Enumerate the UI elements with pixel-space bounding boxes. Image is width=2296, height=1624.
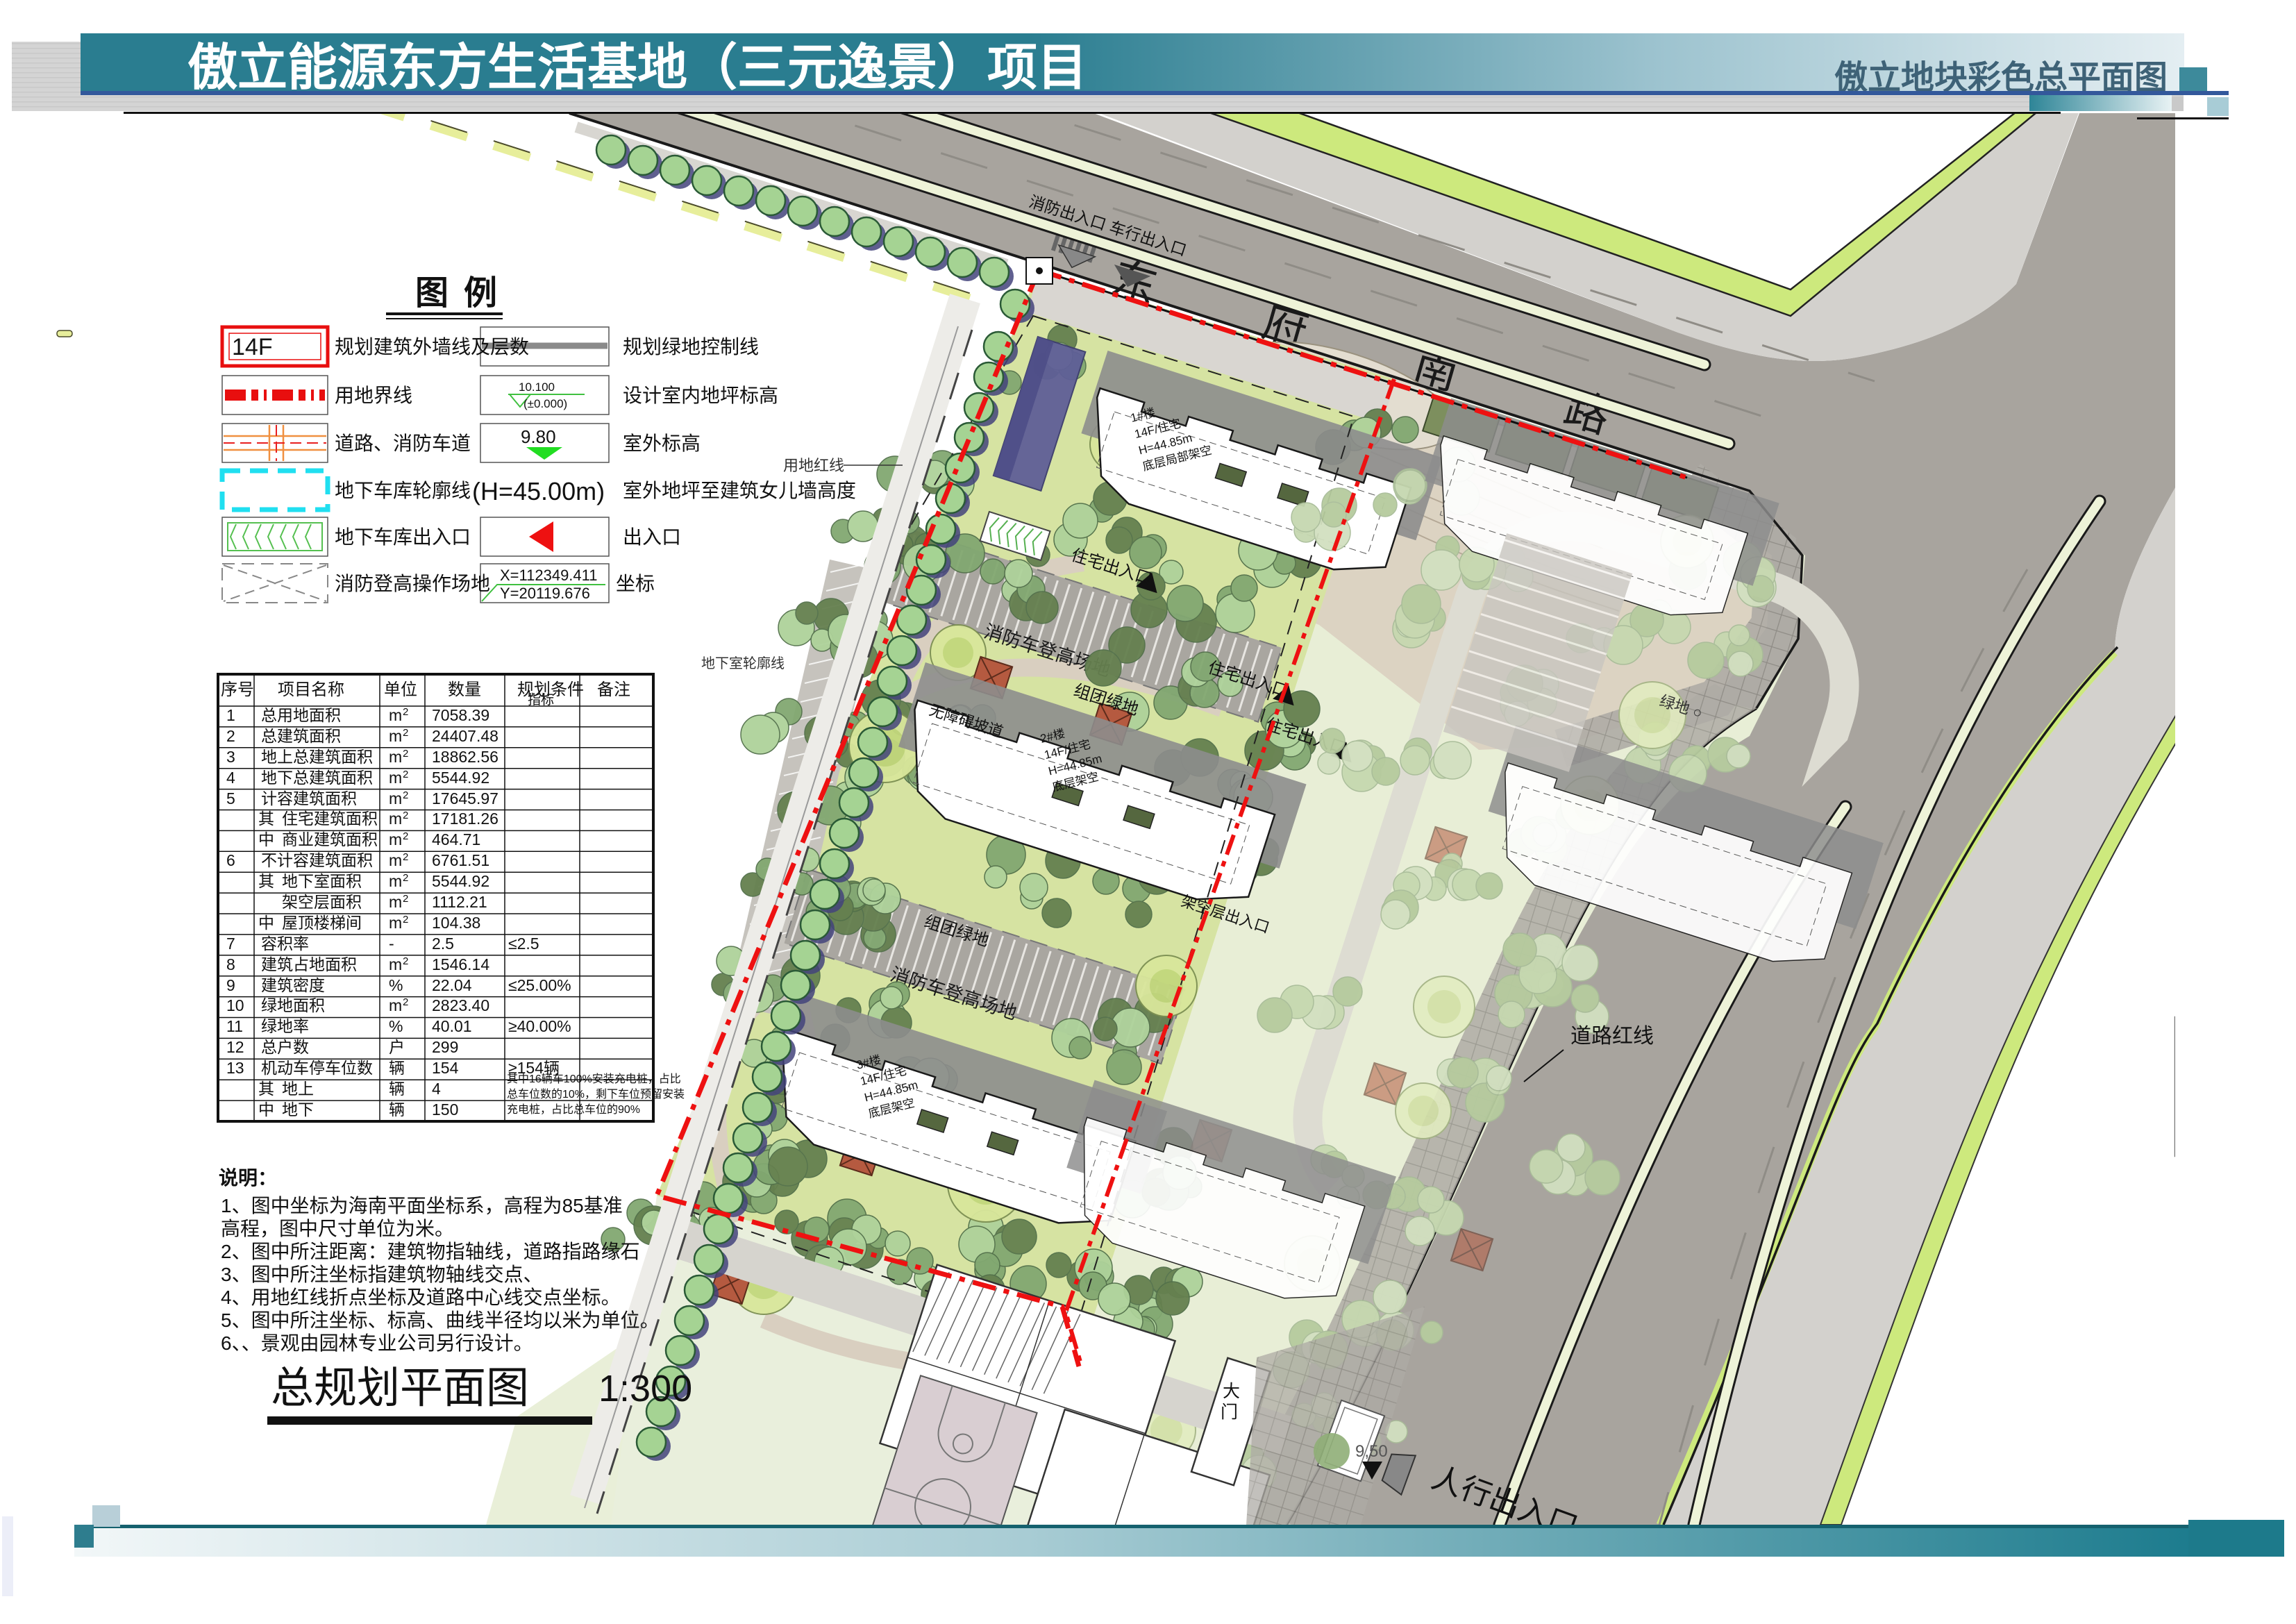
svg-text:设计室内地坪标高: 设计室内地坪标高: [623, 385, 778, 406]
svg-text:不计容建筑面积: 不计容建筑面积: [261, 851, 373, 869]
svg-text:户: 户: [389, 1038, 405, 1056]
svg-text:150: 150: [432, 1100, 458, 1119]
svg-text:2: 2: [403, 996, 408, 1008]
svg-text:24407.48: 24407.48: [432, 727, 498, 745]
svg-text:其: 其: [258, 810, 274, 828]
svg-text:商业建筑面积: 商业建筑面积: [282, 830, 378, 848]
svg-text:地下: 地下: [282, 1100, 314, 1119]
svg-text:9: 9: [226, 976, 235, 994]
svg-text:总规划平面图: 总规划平面图: [271, 1364, 529, 1412]
svg-text:坐标: 坐标: [616, 573, 655, 594]
svg-text:m: m: [389, 769, 402, 787]
svg-text:2: 2: [403, 789, 408, 801]
svg-text:m: m: [389, 893, 402, 911]
svg-text:1112.21: 1112.21: [432, 893, 487, 911]
svg-text:道路红线: 道路红线: [1570, 1025, 1654, 1048]
svg-text:9,50: 9,50: [1355, 1442, 1388, 1461]
svg-text:m: m: [389, 706, 402, 724]
svg-text:辆: 辆: [389, 1059, 405, 1077]
svg-text:12: 12: [226, 1038, 244, 1056]
svg-text:m: m: [389, 789, 402, 807]
svg-text:m: m: [389, 996, 402, 1014]
svg-text:2: 2: [226, 727, 235, 745]
svg-text:1:300: 1:300: [598, 1368, 692, 1409]
svg-text:10.100: 10.100: [519, 380, 555, 394]
svg-text:4: 4: [226, 769, 235, 787]
svg-text:地下总建筑面积: 地下总建筑面积: [261, 769, 373, 787]
svg-text:总户数: 总户数: [261, 1038, 309, 1056]
svg-text:规划绿地控制线: 规划绿地控制线: [623, 336, 759, 358]
svg-text:2: 2: [403, 914, 408, 926]
svg-text:大: 大: [1223, 1382, 1240, 1401]
svg-text:6: 6: [226, 851, 235, 869]
svg-text:m: m: [389, 955, 402, 973]
svg-text:2.5: 2.5: [432, 935, 454, 953]
svg-text:m: m: [389, 830, 402, 848]
svg-text:地下车库轮廓线: 地下车库轮廓线: [335, 480, 471, 501]
svg-text:总车位数的10%，剩下车位预留安装: 总车位数的10%，剩下车位预留安装: [507, 1088, 685, 1100]
svg-text:X=112349.411: X=112349.411: [500, 567, 598, 584]
svg-text:建筑密度: 建筑密度: [261, 976, 325, 994]
svg-text:1546.14: 1546.14: [432, 955, 489, 973]
svg-text:总建筑面积: 总建筑面积: [261, 727, 341, 745]
svg-text:m: m: [389, 851, 402, 869]
svg-text:绿地率: 绿地率: [261, 1017, 309, 1035]
svg-text:住宅建筑面积: 住宅建筑面积: [282, 810, 378, 828]
svg-text:单位: 单位: [384, 680, 417, 699]
svg-text:地下室面积: 地下室面积: [282, 872, 362, 890]
svg-text:道路、消防车道: 道路、消防车道: [335, 433, 471, 454]
svg-text:充电桩，占比总车位的90%: 充电桩，占比总车位的90%: [507, 1103, 640, 1116]
svg-text:绿地面积: 绿地面积: [261, 996, 325, 1014]
svg-text:5、图中所注坐标、标高、曲线半径均以米为单位。: 5、图中所注坐标、标高、曲线半径均以米为单位。: [221, 1309, 660, 1331]
svg-text:说明：: 说明：: [219, 1167, 277, 1189]
svg-text:Y=20119.676: Y=20119.676: [500, 585, 590, 602]
svg-text:2、图中所注距离：建筑物指轴线，道路指路缘石: 2、图中所注距离：建筑物指轴线，道路指路缘石: [221, 1241, 640, 1262]
svg-text:m: m: [389, 872, 402, 890]
svg-text:3: 3: [226, 748, 235, 766]
svg-text:%: %: [389, 1017, 403, 1035]
svg-text:2: 2: [403, 851, 408, 863]
svg-text:13: 13: [226, 1059, 244, 1077]
svg-text:299: 299: [432, 1038, 458, 1056]
svg-text:2823.40: 2823.40: [432, 996, 489, 1014]
svg-text:2: 2: [403, 727, 408, 739]
svg-text:104.38: 104.38: [432, 914, 480, 932]
svg-text:项目名称: 项目名称: [278, 680, 344, 699]
svg-text:5544.92: 5544.92: [432, 769, 489, 787]
svg-text:14F: 14F: [232, 334, 273, 360]
svg-text:地上: 地上: [282, 1080, 314, 1098]
svg-text:6761.51: 6761.51: [432, 851, 489, 869]
svg-text:3、图中所注坐标指建筑物轴线交点、: 3、图中所注坐标指建筑物轴线交点、: [221, 1264, 543, 1285]
svg-text:1、图中坐标为海南平面坐标系，高程为85基准: 1、图中坐标为海南平面坐标系，高程为85基准: [221, 1195, 623, 1216]
svg-text:154: 154: [432, 1059, 459, 1077]
svg-text:辆: 辆: [389, 1080, 405, 1098]
svg-text:2: 2: [403, 769, 408, 780]
svg-text:≤25.00%: ≤25.00%: [508, 976, 571, 994]
svg-text:2: 2: [403, 893, 408, 905]
svg-text:5: 5: [226, 789, 235, 807]
svg-text:2: 2: [403, 830, 408, 842]
svg-text:中: 中: [258, 1100, 274, 1119]
svg-text:辆: 辆: [389, 1100, 405, 1119]
svg-text:消防登高操作场地: 消防登高操作场地: [335, 573, 490, 594]
svg-text:建筑占地面积: 建筑占地面积: [261, 955, 357, 973]
svg-text:10: 10: [226, 996, 244, 1014]
svg-text:2: 2: [403, 955, 408, 967]
svg-text:其: 其: [258, 1080, 274, 1098]
svg-text:地下室轮廓线: 地下室轮廓线: [701, 655, 785, 671]
svg-text:%: %: [389, 976, 403, 994]
svg-text:8: 8: [226, 955, 235, 973]
svg-text:中: 中: [258, 830, 274, 848]
svg-text:7058.39: 7058.39: [432, 706, 489, 724]
svg-text:m: m: [389, 810, 402, 828]
svg-text:2: 2: [403, 706, 408, 718]
svg-text:其: 其: [258, 872, 274, 890]
svg-text:容积率: 容积率: [261, 935, 309, 953]
svg-text:(H=45.00m): (H=45.00m): [472, 477, 605, 505]
svg-text:m: m: [389, 914, 402, 932]
svg-text:地上总建筑面积: 地上总建筑面积: [261, 748, 373, 766]
svg-text:2: 2: [403, 748, 408, 760]
svg-text:m: m: [389, 727, 402, 745]
svg-text:9.80: 9.80: [521, 426, 556, 447]
svg-text:22.04: 22.04: [432, 976, 472, 994]
svg-text:高程，图中尺寸单位为米。: 高程，图中尺寸单位为米。: [221, 1218, 454, 1239]
svg-text:机动车停车位数: 机动车停车位数: [261, 1059, 373, 1077]
svg-text:中: 中: [258, 914, 274, 932]
svg-text:用地界线: 用地界线: [335, 385, 412, 406]
svg-text:用地红线: 用地红线: [783, 457, 844, 474]
svg-text:傲立能源东方生活基地（三元逸景）项目: 傲立能源东方生活基地（三元逸景）项目: [187, 40, 1087, 96]
svg-text:总用地面积: 总用地面积: [261, 706, 341, 724]
svg-text:≥40.00%: ≥40.00%: [508, 1017, 571, 1035]
svg-text:指标: 指标: [528, 692, 554, 708]
svg-text:6、、景观由园林专业公司另行设计。: 6、、景观由园林专业公司另行设计。: [221, 1332, 533, 1354]
svg-text:18862.56: 18862.56: [432, 748, 498, 766]
svg-text:4: 4: [432, 1080, 441, 1098]
svg-text:4、用地红线折点坐标及道路中心线交点坐标。: 4、用地红线折点坐标及道路中心线交点坐标。: [221, 1287, 621, 1308]
svg-text:m: m: [389, 748, 402, 766]
svg-text:架空层面积: 架空层面积: [282, 893, 362, 911]
svg-text:7: 7: [226, 935, 235, 953]
svg-text:室外地坪至建筑女儿墙高度: 室外地坪至建筑女儿墙高度: [623, 480, 856, 501]
svg-text:11: 11: [226, 1017, 243, 1035]
svg-text:出入口: 出入口: [623, 526, 681, 548]
svg-text:17181.26: 17181.26: [432, 810, 498, 828]
svg-text:备注: 备注: [597, 680, 630, 699]
svg-text:图例: 图例: [415, 275, 512, 312]
svg-text:序号: 序号: [221, 680, 254, 699]
svg-text:2: 2: [403, 810, 408, 821]
svg-text:规划建筑外墙线及层数: 规划建筑外墙线及层数: [335, 336, 529, 358]
svg-text:(±0.000): (±0.000): [523, 397, 567, 410]
svg-text:计容建筑面积: 计容建筑面积: [261, 789, 357, 807]
svg-text:-: -: [389, 935, 394, 953]
svg-text:屋顶楼梯间: 屋顶楼梯间: [282, 914, 362, 932]
svg-text:≤2.5: ≤2.5: [508, 935, 539, 953]
svg-text:2: 2: [403, 872, 408, 884]
svg-text:数量: 数量: [448, 680, 481, 699]
svg-text:5544.92: 5544.92: [432, 872, 489, 890]
svg-text:室外标高: 室外标高: [623, 433, 701, 454]
svg-text:17645.97: 17645.97: [432, 789, 498, 807]
svg-text:地下车库出入口: 地下车库出入口: [335, 526, 471, 548]
svg-text:1: 1: [226, 706, 235, 724]
svg-text:其中16辆车100%安装充电桩，占比: 其中16辆车100%安装充电桩，占比: [507, 1073, 681, 1085]
svg-text:464.71: 464.71: [432, 830, 480, 848]
svg-text:40.01: 40.01: [432, 1017, 472, 1035]
svg-text:门: 门: [1221, 1403, 1238, 1422]
